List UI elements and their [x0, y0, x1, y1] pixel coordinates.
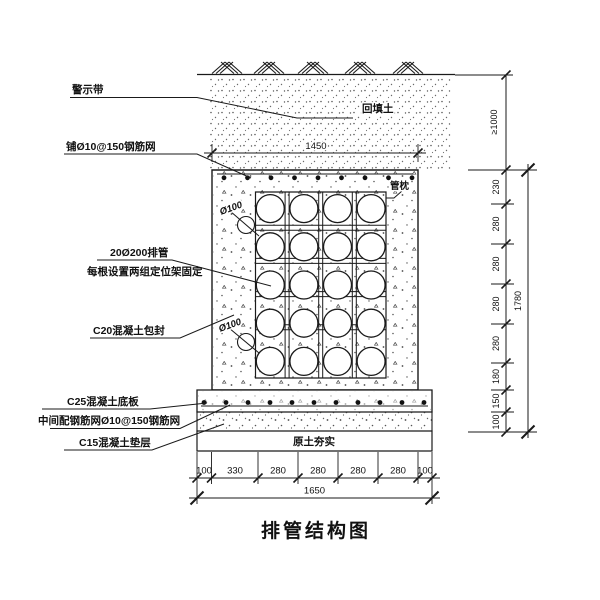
rebar-dot [410, 175, 415, 180]
pipe-circle [357, 347, 385, 375]
pipe-circle [290, 233, 318, 261]
cushion-label: C15混凝土垫层 [79, 436, 151, 449]
rebar-dot [246, 400, 251, 405]
pipe-circle [357, 309, 385, 337]
cover-depth-dim: ≥1000 [489, 110, 499, 135]
pipe-circle [324, 233, 352, 261]
rebar-dot [290, 400, 295, 405]
rebar-dot [363, 175, 368, 180]
pipes-label-line1: 20Ø200排管 [110, 246, 169, 259]
right-chain-dim-0: 230 [491, 179, 501, 194]
bottom-chain-dim-6: 100 [417, 466, 433, 477]
pipe-circle [256, 347, 284, 375]
right-total-dim: 1780 [513, 291, 523, 311]
pipe-circle [256, 271, 284, 299]
rebar-dot [334, 400, 339, 405]
pipe-circle [290, 195, 318, 223]
cushion-layer [197, 412, 432, 431]
rebar-dot [268, 400, 273, 405]
pipe-pillow-label: 管枕 [390, 180, 410, 192]
right-chain-dim-2: 280 [491, 256, 501, 271]
rebar-dot [378, 400, 383, 405]
rebar-dot [222, 175, 227, 180]
rebar-dot [292, 175, 297, 180]
bottom-chain-dim-0: 100 [196, 466, 212, 477]
encasement-label: C20混凝土包封 [93, 324, 165, 337]
base-slab-label: C25混凝土底板 [67, 395, 139, 408]
rebar-dot [224, 400, 229, 405]
pipe-circle [357, 271, 385, 299]
bottom-total-dim: 1650 [304, 486, 325, 497]
pipe-circle [256, 195, 284, 223]
pipe-circle [357, 195, 385, 223]
backfill-label: 回填土 [362, 102, 394, 115]
warning-tape-label: 警示带 [71, 83, 104, 96]
rebar-dot [316, 175, 321, 180]
top-mesh-label: 铺Ø10@150钢筋网 [66, 140, 156, 153]
pipe-circle [256, 309, 284, 337]
bottom-chain-dim-4: 280 [350, 466, 366, 477]
pipe-circle [357, 233, 385, 261]
rebar-dot [202, 400, 207, 405]
bottom-chain-dim-2: 280 [270, 466, 286, 477]
middle-mesh-label: 中间配钢筋网Ø10@150钢筋网 [38, 414, 180, 427]
right-chain-dim-3: 280 [491, 296, 501, 311]
drawing-sheet: 原土夯实 警示带 铺Ø10@150钢筋网 20Ø200排管 每根设置两组定位架固… [0, 0, 600, 600]
pipe-circle [290, 271, 318, 299]
rebar-dot [422, 400, 427, 405]
right-chain-dim-5: 180 [491, 369, 501, 384]
pipe-circle [290, 347, 318, 375]
right-chain-dim-6: 150 [491, 393, 501, 408]
rebar-dot [339, 175, 344, 180]
right-chain-dim-1: 280 [491, 216, 501, 231]
pipe-circle [324, 309, 352, 337]
bottom-chain-dim-3: 280 [310, 466, 326, 477]
right-chain-dim-4: 280 [491, 336, 501, 351]
pipe-circle [324, 195, 352, 223]
ground-hatch-marks [212, 62, 423, 74]
rebar-dot [269, 175, 274, 180]
pipe-circle [324, 271, 352, 299]
pipe-circle [324, 347, 352, 375]
bottom-chain-dim-5: 280 [390, 466, 406, 477]
compacted-soil-label: 原土夯实 [293, 435, 335, 448]
pipes-label-line2: 每根设置两组定位架固定 [87, 265, 203, 278]
duct-bank-section-drawing: 原土夯实 警示带 铺Ø10@150钢筋网 20Ø200排管 每根设置两组定位架固… [0, 0, 600, 600]
rebar-dot [356, 400, 361, 405]
pipe-circle [256, 233, 284, 261]
rebar-dot [312, 400, 317, 405]
pipe-circle [290, 309, 318, 337]
rebar-dot [386, 175, 391, 180]
drawing-title: 排管结构图 [261, 519, 371, 542]
top-width-dim: 1450 [305, 141, 326, 152]
bottom-chain-dim-1: 330 [227, 466, 243, 477]
right-chain-dim-7: 100 [491, 414, 501, 429]
rebar-dot [400, 400, 405, 405]
